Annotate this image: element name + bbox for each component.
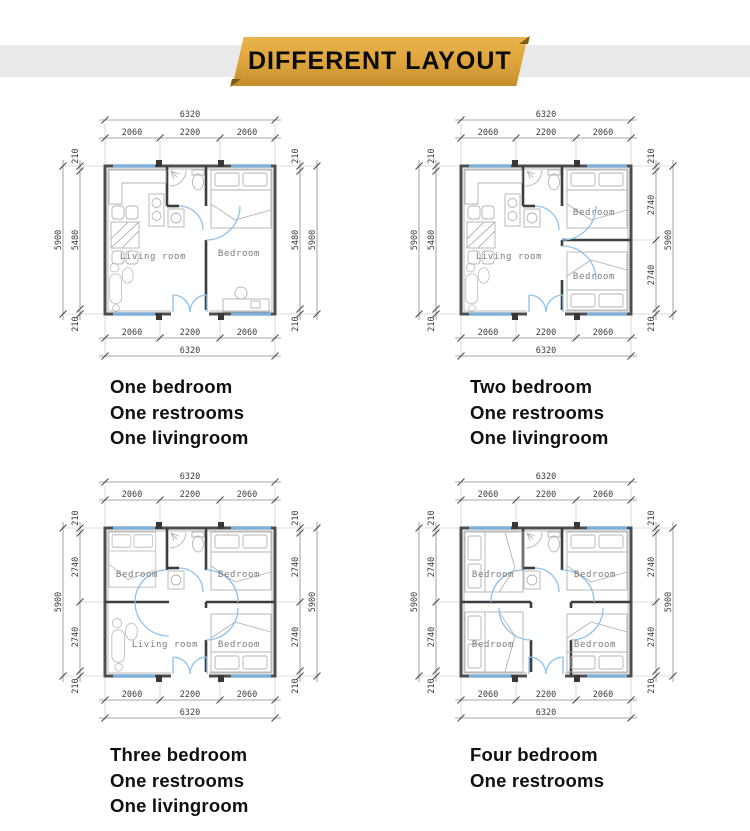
entrance-double-door: [173, 657, 207, 674]
bathroom-door-arc: [179, 206, 203, 230]
caption-line: One restrooms: [470, 768, 604, 794]
dim-total-width: 6320: [536, 708, 556, 718]
dim-total-height: 5900: [308, 592, 318, 612]
floorplan-four-bedroom-drawing: 6320 2060 2200 2060 2060 2200 2060 6320 …: [381, 468, 711, 738]
interior-walls: [461, 528, 631, 676]
dim-side: 2740: [647, 265, 657, 285]
room-label-bedroom: Bedroom: [573, 208, 615, 218]
bathroom-door-arc: [535, 206, 559, 230]
dim-side: 5480: [291, 230, 301, 250]
dimension-ticks: [60, 117, 321, 360]
dim-side: 210: [647, 678, 657, 693]
room-label-living: Living room: [120, 252, 186, 262]
dim-side: 210: [71, 148, 81, 163]
cabinet: [524, 571, 540, 589]
dim-side: 5480: [427, 230, 437, 250]
dim-total-width: 6320: [536, 346, 556, 356]
floorplan-one-bedroom-drawing: 6320 2060 2200 2060 2060 2200 2060 6320 …: [25, 106, 355, 376]
caption-line: Three bedroom: [110, 742, 248, 768]
bathroom-fixtures: [170, 170, 204, 190]
dim-side: 2740: [647, 627, 657, 647]
extension-lines: [61, 124, 319, 358]
floorplan-three-bedroom: 6320 2060 2200 2060 2060 2200 2060 6320 …: [25, 468, 355, 738]
dimension-lines: [419, 482, 673, 718]
dim-side: 210: [647, 316, 657, 331]
dim-side: 210: [427, 678, 437, 693]
caption-line: One bedroom: [110, 374, 248, 400]
room-label-living: Living room: [476, 252, 542, 262]
bed-top: [567, 170, 627, 228]
dim-side: 210: [291, 678, 301, 693]
dim-side: 210: [291, 316, 301, 331]
dim-side: 210: [427, 316, 437, 331]
caption-line: One livingroom: [470, 425, 608, 451]
dim-seg: 2060: [122, 690, 142, 700]
cabinet: [524, 209, 540, 227]
dim-seg: 2060: [122, 328, 142, 338]
dim-total-height: 5900: [664, 592, 674, 612]
caption-line: Two bedroom: [470, 374, 608, 400]
dim-seg: 2200: [536, 490, 556, 500]
dimension-ticks: [416, 479, 677, 722]
dim-side: 210: [647, 510, 657, 525]
dim-total-width: 6320: [180, 110, 200, 120]
dimension-lines: [419, 120, 673, 356]
bed: [211, 170, 271, 228]
plan-caption-two-bedroom: Two bedroom One restrooms One livingroom: [470, 374, 608, 451]
dim-total-height: 5900: [410, 592, 420, 612]
plan-caption-one-bedroom: One bedroom One restrooms One livingroom: [110, 374, 248, 451]
bathroom-fixtures: [526, 532, 560, 552]
dim-seg: 2060: [237, 490, 257, 500]
entrance-double-door: [173, 295, 207, 312]
room-label-bedroom: Bedroom: [574, 640, 616, 650]
dim-seg: 2200: [180, 128, 200, 138]
entrance-double-door: [529, 295, 563, 312]
dim-side: 2740: [427, 557, 437, 577]
lounge-set: [110, 263, 133, 311]
dim-seg: 2200: [536, 128, 556, 138]
stove: [505, 194, 520, 226]
dim-side: 2740: [427, 627, 437, 647]
caption-line: One livingroom: [110, 425, 248, 451]
dim-seg: 2060: [478, 328, 498, 338]
dim-side: 210: [647, 148, 657, 163]
floorplan-four-bedroom: 6320 2060 2200 2060 2060 2200 2060 6320 …: [381, 468, 711, 738]
dim-side: 210: [71, 510, 81, 525]
dim-total-height: 5900: [410, 230, 420, 250]
dim-total-width: 6320: [180, 346, 200, 356]
dim-seg: 2060: [593, 490, 613, 500]
bed-top-right: [567, 532, 627, 590]
bathroom-door-arc: [535, 568, 559, 592]
extension-lines: [417, 124, 675, 358]
bathroom-door-arc: [179, 568, 203, 592]
room-label-bedroom: Bedroom: [574, 570, 616, 580]
dimension-lines: [63, 120, 317, 356]
cabinet: [168, 571, 184, 589]
floorplan-two-bedroom-drawing: 6320 2060 2200 2060 2060 2200 2060 6320 …: [381, 106, 711, 376]
dim-seg: 2060: [122, 490, 142, 500]
desk-and-chair: [223, 287, 269, 312]
dimension-lines: [63, 482, 317, 718]
room-label-bedroom: Bedroom: [116, 570, 158, 580]
dim-seg: 2060: [593, 328, 613, 338]
dim-seg: 2060: [237, 128, 257, 138]
room-label-living: Living room: [132, 640, 198, 650]
dim-total-height: 5900: [308, 230, 318, 250]
dim-seg: 2060: [478, 128, 498, 138]
dim-seg: 2200: [180, 328, 200, 338]
room-label-bedroom: Bedroom: [218, 570, 260, 580]
bathroom-fixtures: [170, 532, 204, 552]
dim-seg: 2060: [478, 490, 498, 500]
dim-total-width: 6320: [536, 110, 556, 120]
room-label-bedroom: Bedroom: [218, 249, 260, 259]
dim-side: 210: [427, 510, 437, 525]
dim-side: 5480: [71, 230, 81, 250]
dimension-ticks: [416, 117, 677, 360]
dim-side: 2740: [647, 195, 657, 215]
dim-seg: 2060: [478, 690, 498, 700]
floorplan-two-bedroom: 6320 2060 2200 2060 2060 2200 2060 6320 …: [381, 106, 711, 376]
entrance-double-door: [529, 657, 563, 674]
dim-side: 210: [71, 678, 81, 693]
dim-side: 2740: [71, 627, 81, 647]
interior-walls: [523, 166, 631, 314]
dim-seg: 2060: [593, 690, 613, 700]
interior-walls: [105, 528, 275, 676]
dim-seg: 2060: [237, 690, 257, 700]
lounge-set: [466, 263, 489, 311]
dim-side: 210: [427, 148, 437, 163]
stove: [149, 194, 164, 226]
dim-seg: 2200: [180, 490, 200, 500]
section-banner: DIFFERENT LAYOUT: [232, 37, 527, 86]
caption-line: One restrooms: [470, 400, 608, 426]
dim-total-height: 5900: [54, 230, 64, 250]
cabinet: [168, 209, 184, 227]
dim-seg: 2060: [122, 128, 142, 138]
product-layout-sheet: DIFFERENT LAYOUT: [0, 0, 750, 831]
room-label-bedroom: Bedroom: [573, 272, 615, 282]
interior-walls: [167, 166, 206, 314]
dim-side: 2740: [647, 557, 657, 577]
dim-seg: 2060: [237, 328, 257, 338]
dim-side: 210: [291, 510, 301, 525]
caption-line: One livingroom: [110, 793, 248, 819]
dim-total-width: 6320: [536, 472, 556, 482]
dim-seg: 2200: [536, 328, 556, 338]
floorplan-one-bedroom: 6320 2060 2200 2060 2060 2200 2060 6320 …: [25, 106, 355, 376]
caption-line: One restrooms: [110, 400, 248, 426]
dim-side: 2740: [291, 627, 301, 647]
dim-seg: 2200: [536, 690, 556, 700]
dim-total-height: 5900: [664, 230, 674, 250]
banner-title: DIFFERENT LAYOUT: [248, 47, 512, 76]
plan-caption-four-bedroom: Four bedroom One restrooms: [470, 742, 604, 793]
dimension-ticks: [60, 479, 321, 722]
extension-lines: [417, 486, 675, 720]
dim-total-width: 6320: [180, 708, 200, 718]
dim-seg: 2200: [180, 690, 200, 700]
room-label-bedroom: Bedroom: [218, 640, 260, 650]
dim-side: 210: [291, 148, 301, 163]
dim-total-height: 5900: [54, 592, 64, 612]
bathroom-fixtures: [526, 170, 560, 190]
bed-top-left: [465, 532, 523, 592]
room-label-bedroom: Bedroom: [472, 640, 514, 650]
living-door-arc: [135, 602, 169, 636]
floorplan-three-bedroom-drawing: 6320 2060 2200 2060 2060 2200 2060 6320 …: [25, 468, 355, 738]
caption-line: One restrooms: [110, 768, 248, 794]
dim-seg: 2060: [593, 128, 613, 138]
dim-side: 2740: [71, 557, 81, 577]
plan-caption-three-bedroom: Three bedroom One restrooms One livingro…: [110, 742, 248, 819]
dim-side: 2740: [291, 557, 301, 577]
dim-side: 210: [71, 316, 81, 331]
caption-line: Four bedroom: [470, 742, 604, 768]
dim-total-width: 6320: [180, 472, 200, 482]
extension-lines: [61, 486, 319, 720]
bed-top-right: [211, 532, 271, 590]
room-label-bedroom: Bedroom: [472, 570, 514, 580]
